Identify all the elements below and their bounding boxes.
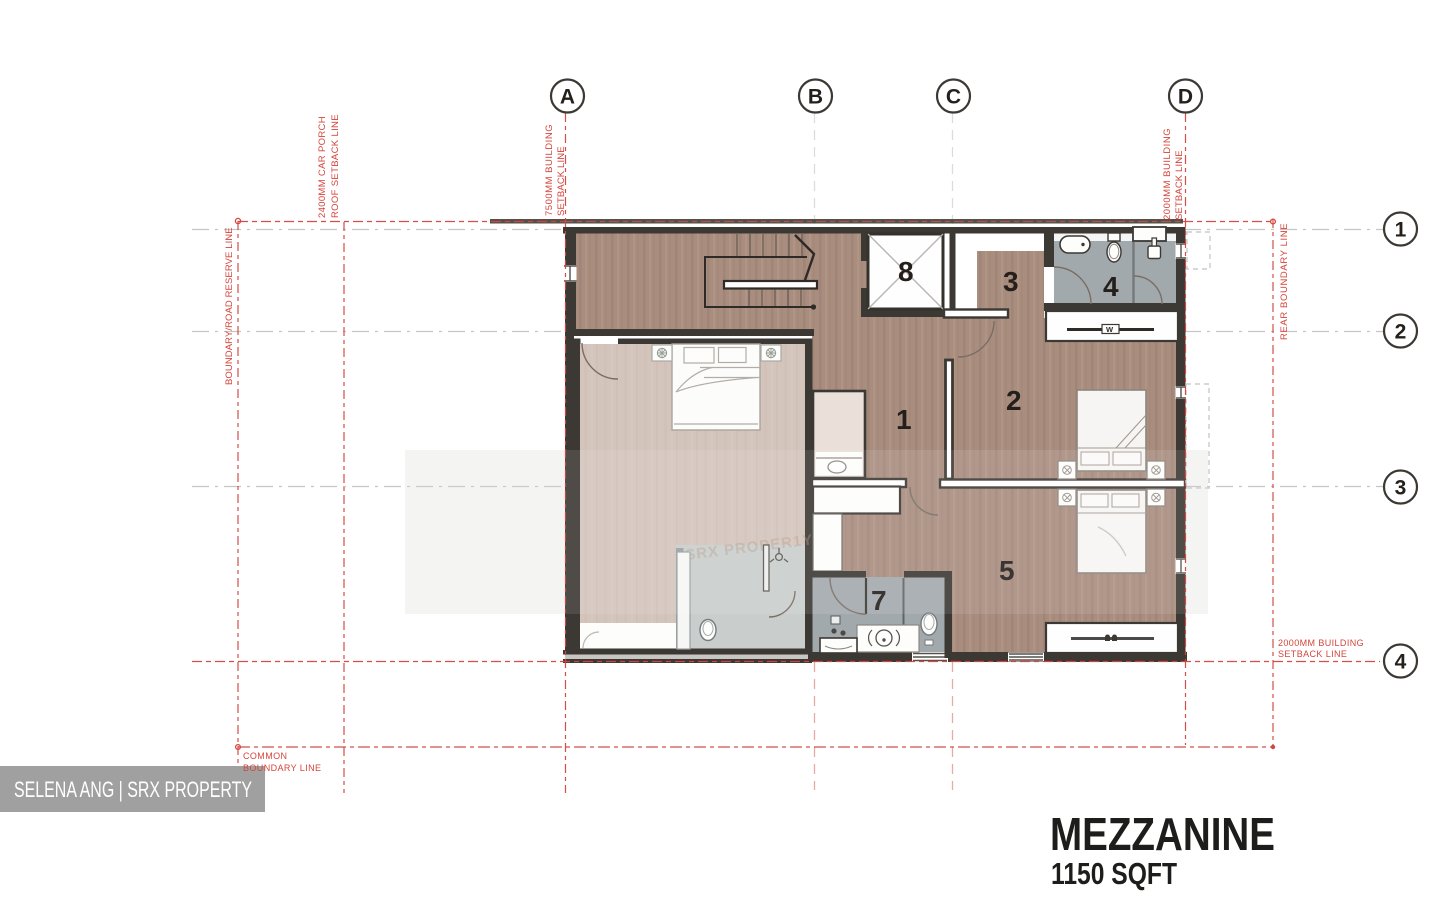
svg-text:1150 SQFT: 1150 SQFT — [1051, 856, 1177, 891]
svg-text:SELENA ANG | SRX PROPERTY: SELENA ANG | SRX PROPERTY — [14, 777, 252, 802]
svg-text:BOUNDARY/ROAD RESERVE LINE: BOUNDARY/ROAD RESERVE LINE — [224, 227, 235, 385]
svg-text:2000MM BUILDING: 2000MM BUILDING — [1278, 638, 1364, 648]
svg-text:COMMON: COMMON — [243, 751, 287, 761]
svg-text:MEZZANINE: MEZZANINE — [1050, 808, 1275, 860]
svg-text:1: 1 — [896, 404, 912, 435]
svg-text:BOUNDARY LINE: BOUNDARY LINE — [243, 763, 321, 773]
svg-text:2400MM CAR PORCH: 2400MM CAR PORCH — [317, 116, 328, 218]
svg-text:2: 2 — [1006, 385, 1022, 416]
svg-text:A: A — [560, 86, 575, 109]
svg-text:SETBACK LINE: SETBACK LINE — [1174, 150, 1185, 220]
svg-text:2: 2 — [1395, 321, 1407, 344]
svg-text:7500MM BUILDING: 7500MM BUILDING — [544, 124, 555, 216]
svg-text:SETBACK LINE: SETBACK LINE — [1278, 649, 1347, 659]
svg-text:D: D — [1178, 86, 1193, 109]
svg-text:SETBACK LINE: SETBACK LINE — [556, 146, 567, 216]
svg-text:REAR BOUNDARY LINE: REAR BOUNDARY LINE — [1279, 223, 1290, 340]
svg-text:3: 3 — [1003, 266, 1019, 297]
svg-text:B: B — [808, 86, 823, 109]
svg-text:1: 1 — [1395, 219, 1407, 242]
svg-text:8: 8 — [898, 256, 914, 287]
svg-text:ROOF SETBACK LINE: ROOF SETBACK LINE — [330, 114, 341, 218]
svg-text:W: W — [1106, 325, 1114, 334]
svg-text:C: C — [946, 86, 961, 109]
svg-text:2000MM BUILDING: 2000MM BUILDING — [1162, 128, 1173, 220]
svg-text:4: 4 — [1395, 651, 1407, 674]
svg-text:3: 3 — [1395, 477, 1407, 500]
svg-text:4: 4 — [1103, 271, 1119, 302]
